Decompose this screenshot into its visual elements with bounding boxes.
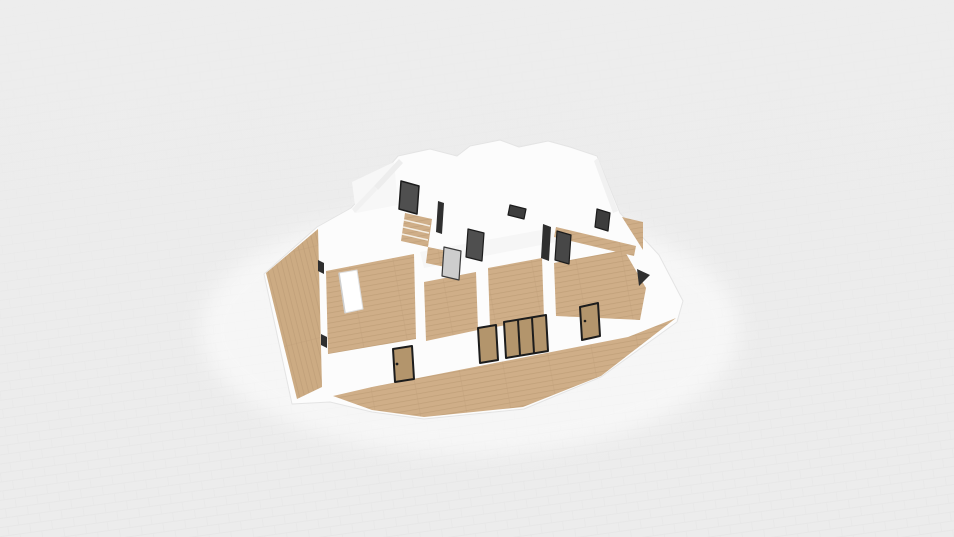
dark-door-panel-2 [555, 231, 571, 264]
dark-door-panel-3 [595, 209, 610, 231]
room-a-floor [424, 272, 478, 341]
floorplan-3d-viewport[interactable] [0, 0, 954, 537]
front-glass-door-1 [478, 325, 498, 363]
stair-door-panel [399, 181, 419, 214]
dark-door-panel-1 [466, 229, 484, 261]
entry-door-handle [396, 363, 399, 366]
floorplan-3d-render [0, 0, 954, 537]
front-sliding-glass-door [504, 315, 548, 358]
right-door-handle [584, 320, 587, 323]
gray-door-panel [442, 247, 461, 280]
living-room-floor [326, 254, 416, 354]
front-door-right [580, 303, 600, 340]
